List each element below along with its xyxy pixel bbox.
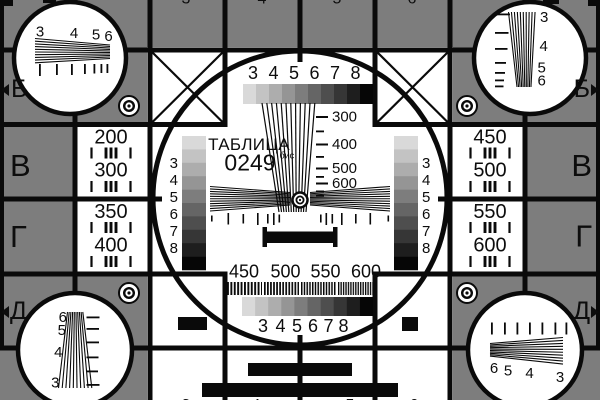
digit: 3 — [258, 316, 268, 336]
corner-circle-bottom-left — [18, 293, 132, 400]
digit: 6 — [422, 206, 430, 223]
digit: 6 — [490, 360, 498, 377]
digit: 4 — [540, 38, 548, 55]
target-icon — [457, 283, 477, 303]
digit: 6 — [104, 28, 112, 45]
grayscale-bar-bottom — [242, 297, 373, 316]
grayscale-bar-top — [243, 84, 373, 104]
digit: 5 — [92, 27, 100, 44]
digit: 8 — [338, 316, 348, 336]
digit: 5 — [422, 189, 430, 206]
digit: 6 — [538, 73, 546, 90]
row-marker: В — [10, 148, 31, 183]
card-code: 0249 — [224, 150, 275, 176]
tv-test-card: 3 4 5 6 7 8 300 400 500 600 ТАБЛИЦА 0249… — [0, 0, 600, 400]
row-marker: Г — [10, 219, 27, 254]
panel-value: 400 — [94, 235, 127, 257]
strip-digits-right: 3 4 5 6 7 8 — [422, 155, 430, 257]
digit: 4 — [422, 172, 430, 189]
digit: 5 — [289, 63, 299, 83]
panel-value: 550 — [473, 201, 506, 223]
corner-circle-bottom-right — [468, 293, 582, 400]
wedge-label-300: 300 — [332, 109, 357, 126]
row-marker: Д — [10, 297, 27, 325]
digit: 7 — [422, 223, 430, 240]
target-icon — [119, 283, 139, 303]
row-marker: Б — [574, 75, 590, 103]
row-marker: В — [571, 148, 592, 183]
panel-value: 300 — [94, 160, 127, 182]
wedge-label-400: 400 — [332, 136, 357, 153]
grayscale-strip-left — [182, 136, 206, 270]
test-card-graphics: 3 4 5 6 7 8 300 400 500 600 ТАБЛИЦА 0249… — [0, 0, 600, 400]
panel-value: 200 — [94, 127, 127, 149]
row-marker: Д — [573, 297, 590, 325]
digit: 8 — [422, 240, 430, 257]
digit: 5 — [292, 316, 302, 336]
digit: 8 — [170, 240, 178, 257]
panel-value: 350 — [94, 201, 127, 223]
strip-digits-left: 3 4 5 6 7 8 — [170, 155, 178, 257]
freq-label-600: 600 — [351, 262, 381, 282]
digit: 7 — [170, 223, 178, 240]
digit: 3 — [170, 155, 178, 172]
target-icon — [119, 96, 139, 116]
digit: 4 — [170, 172, 178, 189]
panel-value: 600 — [473, 235, 506, 257]
clipped-digit: 6 — [408, 0, 417, 8]
digit: 3 — [248, 63, 258, 83]
digit: 3 — [51, 375, 59, 392]
digit: 4 — [54, 344, 62, 361]
digit: 7 — [330, 63, 340, 83]
panel-value: 500 — [473, 160, 506, 182]
clipped-digit: 3 — [182, 0, 191, 8]
digit: 4 — [268, 63, 278, 83]
row-marker: Г — [575, 219, 592, 254]
digit: 7 — [323, 316, 333, 336]
wedge-labels: 300 400 500 600 — [332, 109, 357, 193]
card-code-suffix: бис — [280, 151, 295, 161]
digit: 5 — [504, 363, 512, 380]
digit: 6 — [308, 316, 318, 336]
digit: 4 — [70, 25, 78, 42]
digit: 6 — [170, 206, 178, 223]
row-marker: Б — [11, 75, 27, 103]
center-bullseye — [293, 193, 308, 208]
digit: 6 — [309, 63, 319, 83]
digit: 3 — [36, 24, 44, 41]
freq-label-550: 550 — [310, 262, 340, 282]
grayscale-strip-right — [394, 136, 418, 270]
digit: 5 — [170, 189, 178, 206]
digit: 3 — [556, 369, 564, 386]
digit: 3 — [540, 9, 548, 26]
digit: 4 — [525, 365, 533, 382]
clipped-digit: 5 — [333, 0, 342, 8]
digit: 5 — [58, 322, 66, 339]
target-icon — [457, 96, 477, 116]
digit: 8 — [350, 63, 360, 83]
clipped-digit: 4 — [258, 0, 267, 8]
freq-label-500: 500 — [270, 262, 300, 282]
digit: 3 — [422, 155, 430, 172]
freq-label-450: 450 — [229, 262, 259, 282]
digit: 4 — [275, 316, 285, 336]
panel-value: 450 — [473, 127, 506, 149]
